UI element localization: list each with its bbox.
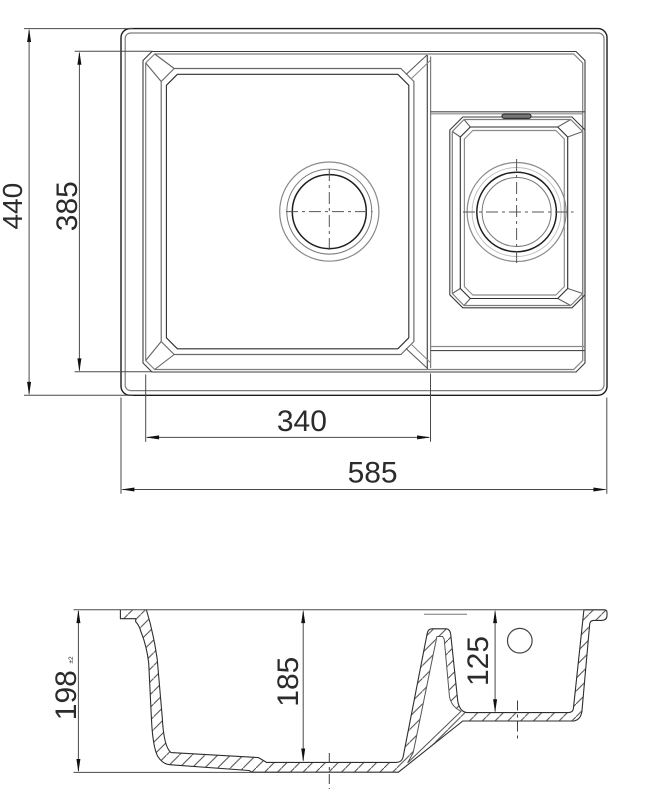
- svg-text:340: 340: [277, 405, 327, 438]
- svg-text:198: 198: [50, 670, 83, 720]
- svg-text:385: 385: [51, 181, 84, 231]
- svg-text:±2: ±2: [68, 656, 75, 664]
- svg-text:125: 125: [462, 636, 495, 686]
- svg-text:185: 185: [272, 657, 305, 707]
- svg-text:440: 440: [0, 183, 28, 230]
- svg-text:585: 585: [348, 457, 398, 490]
